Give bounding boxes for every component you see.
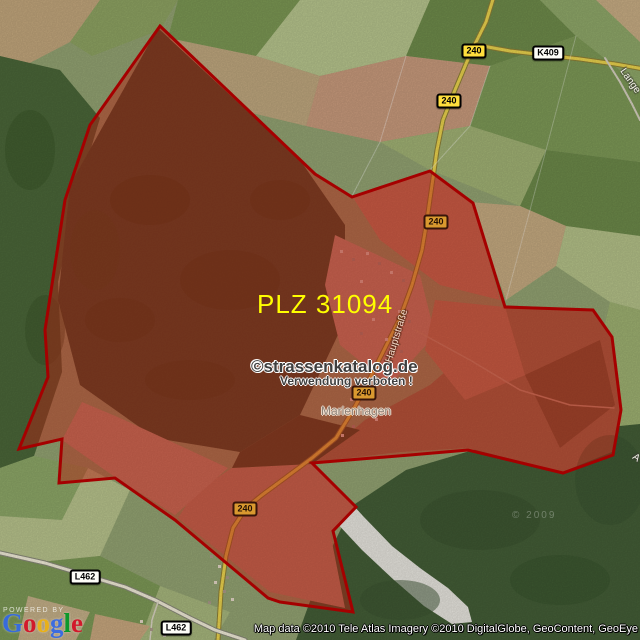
road-shield-k409: K409: [532, 46, 564, 61]
road-shield-l462: L462: [70, 570, 101, 585]
road-shield-240: 240: [423, 215, 448, 230]
road-shield-240: 240: [232, 502, 257, 517]
road-shield-l462: L462: [161, 621, 192, 636]
road-shield-240: 240: [436, 94, 461, 109]
satellite-basemap: [0, 0, 640, 640]
road-shield-240: 240: [351, 386, 376, 401]
map-canvas[interactable]: PLZ 31094 ©strassenkatalog.de Verwendung…: [0, 0, 640, 640]
road-shield-240: 240: [461, 44, 486, 59]
